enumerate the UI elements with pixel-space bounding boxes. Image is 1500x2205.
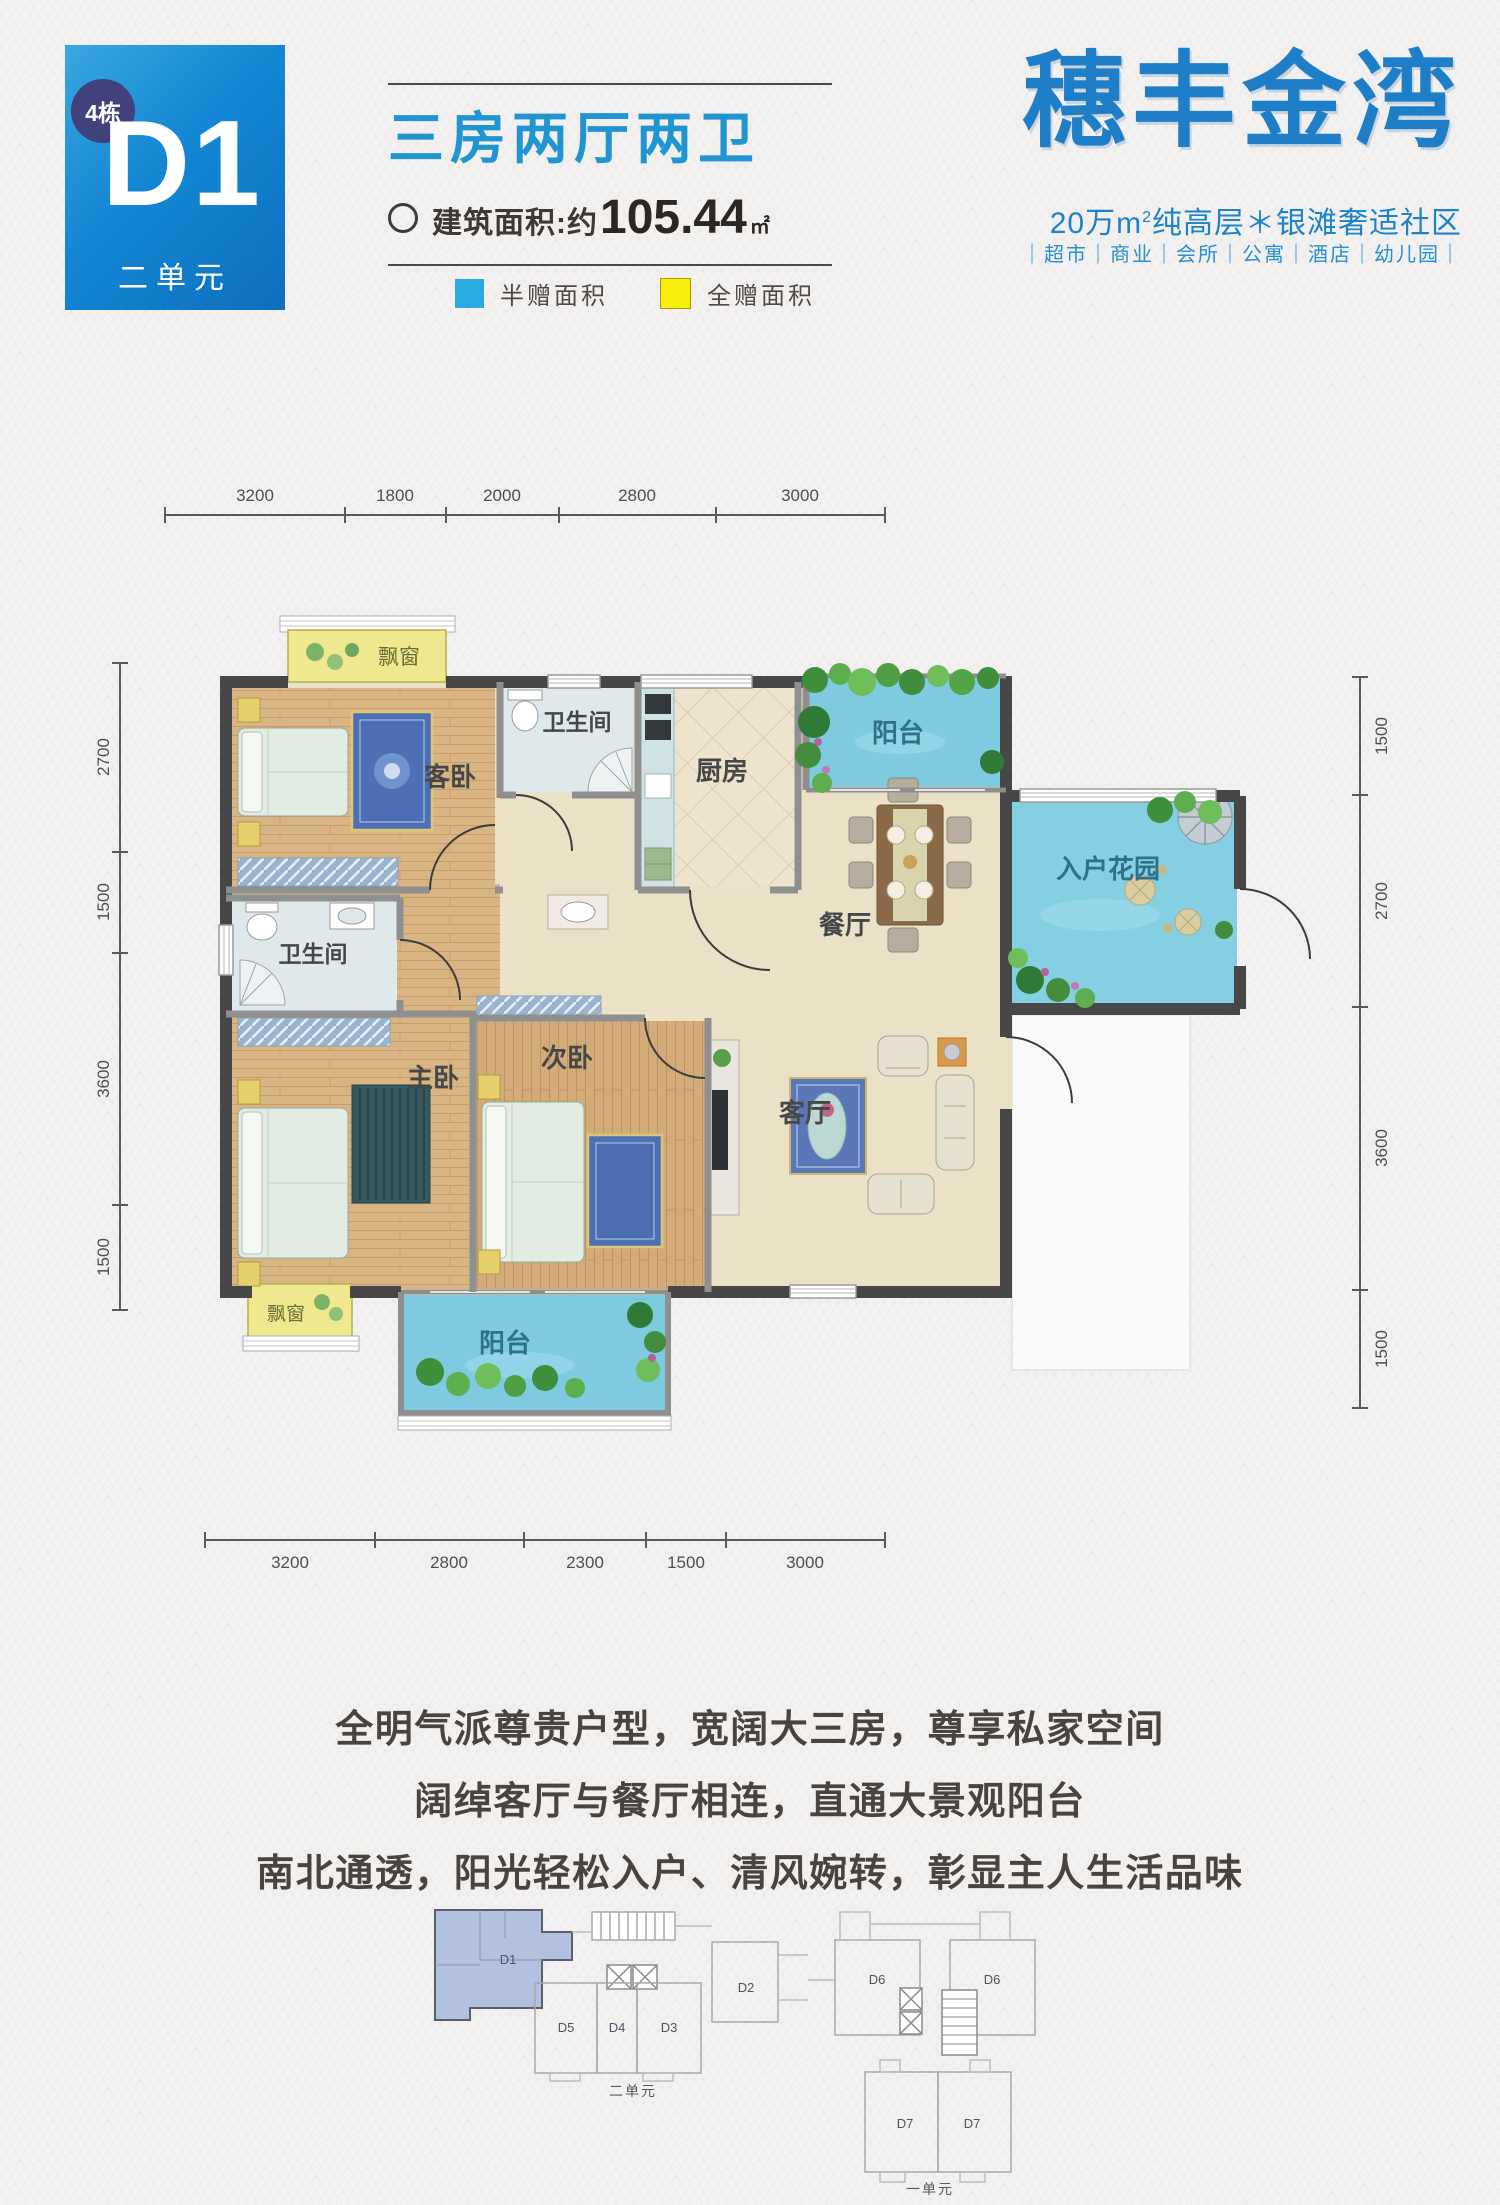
label-kitchen: 厨房	[696, 756, 748, 786]
half-gift-area-swatch	[455, 279, 484, 308]
dim-top-2: 1800	[376, 486, 414, 505]
label-bay-window-top: 飘窗	[378, 646, 420, 669]
title-rule-bottom	[388, 264, 832, 266]
keyplan-labels: D1 D5 D4 D3 D2 D6 D6 D7 D7 二单元 一单元	[500, 1952, 1001, 2197]
label-bay-window-bottom: 飘窗	[267, 1303, 305, 1325]
keyplan-caption-right: 一单元	[906, 2181, 954, 2197]
tagline-sup: 2	[1142, 209, 1152, 226]
area-prefix: 建筑面积:约	[432, 198, 598, 242]
dim-top-1: 3200	[236, 486, 274, 505]
floor-plan: 3200 1800 2000 2800 3000 3200 2800 2300 …	[0, 330, 1500, 1630]
master-wardrobe	[238, 1018, 390, 1046]
keyplan-label-d6-left: D6	[869, 1972, 886, 1987]
unit-name: 二单元	[65, 253, 285, 297]
unit-code: D1	[65, 93, 285, 233]
dim-left-3: 3600	[94, 1060, 113, 1098]
dim-left-2: 1500	[94, 883, 113, 921]
key-plan: D1 D5 D4 D3 D2 D6 D6 D7 D7 二单元 一单元	[280, 1880, 1220, 2205]
area-value: 105.44	[600, 190, 747, 245]
poster-page: 4栋 D1 二单元 三房两厅两卫 建筑面积:约 105.44 ㎡ 半赠面积 全赠…	[0, 0, 1500, 2205]
second-rug	[588, 1135, 662, 1247]
keyplan-label-d2: D2	[738, 1980, 755, 1995]
page-title: 三房两厅两卫	[388, 94, 848, 175]
label-guest-bedroom: 客卧	[424, 762, 476, 792]
dim-right-2: 2700	[1372, 882, 1391, 920]
dim-top-5: 3000	[781, 486, 819, 505]
label-second-bedroom: 次卧	[541, 1043, 593, 1073]
label-master-bedroom: 主卧	[407, 1063, 459, 1093]
dim-top-3: 2000	[483, 486, 521, 505]
legend: 半赠面积 全赠面积	[455, 276, 867, 311]
area-row: 建筑面积:约 105.44 ㎡	[388, 190, 770, 245]
unit-code-box: 4栋 D1 二单元	[65, 45, 285, 310]
guest-rug	[352, 712, 432, 830]
dim-bottom-5: 3000	[786, 1553, 824, 1572]
brand-logo: 穗丰金湾	[890, 40, 1462, 165]
dim-left-4: 1500	[94, 1238, 113, 1276]
keyplan-label-d5: D5	[558, 2020, 575, 2035]
tagline-suffix: 纯高层＊银滩奢适社区	[1152, 207, 1462, 240]
dim-bottom-1: 3200	[271, 1553, 309, 1572]
keyplan-caption-left: 二单元	[609, 2083, 657, 2099]
master-bed	[238, 1080, 348, 1286]
dim-bottom-2: 2800	[430, 1553, 468, 1572]
marketing-line-1: 全明气派尊贵户型，宽阔大三房，尊享私家空间	[0, 1698, 1500, 1753]
dim-right-1: 1500	[1372, 717, 1391, 755]
master-rug	[352, 1085, 430, 1203]
brand-logo-text: 穗丰金湾	[890, 40, 1462, 165]
legend-label: 全赠面积	[707, 276, 815, 311]
legend-label: 半赠面积	[500, 276, 608, 311]
circle-bullet-icon	[388, 203, 418, 233]
area-unit: ㎡	[750, 210, 770, 239]
brand-tagline: 20万m2纯高层＊银滩奢适社区	[890, 198, 1462, 242]
tagline-prefix: 20万m	[1050, 207, 1142, 240]
label-entry-garden: 入户花园	[1056, 854, 1160, 884]
full-gift-area-swatch	[660, 278, 691, 309]
keyplan-label-d4: D4	[609, 2020, 626, 2035]
label-living-room: 客厅	[779, 1098, 831, 1128]
keyplan-label-d1: D1	[500, 1952, 517, 1967]
title-rule-top	[388, 83, 832, 85]
dim-right-3: 3600	[1372, 1129, 1391, 1167]
kitchen-counter	[641, 688, 674, 887]
label-bathroom-1: 卫生间	[543, 709, 612, 735]
marketing-line-2: 阔绰客厅与餐厅相连，直通大景观阳台	[0, 1770, 1500, 1825]
label-bathroom-2: 卫生间	[279, 941, 348, 967]
keyplan-label-d3: D3	[661, 2020, 678, 2035]
keyplan-label-d7-left: D7	[897, 2116, 914, 2131]
keyplan-left-outlines	[435, 1910, 808, 2081]
dim-bottom-3: 2300	[566, 1553, 604, 1572]
second-bed	[478, 1075, 584, 1274]
dim-top-4: 2800	[618, 486, 656, 505]
legend-item-half: 半赠面积	[455, 276, 608, 311]
keyplan-right-outlines	[808, 1912, 1035, 2182]
label-balcony-top: 阳台	[872, 718, 924, 748]
guest-closet	[238, 858, 398, 886]
public-corridor-area	[1012, 1015, 1190, 1370]
legend-item-full: 全赠面积	[660, 276, 815, 311]
label-balcony-bottom: 阳台	[479, 1328, 531, 1358]
dim-bottom-4: 1500	[667, 1553, 705, 1572]
dim-left-1: 2700	[94, 738, 113, 776]
dim-right-4: 1500	[1372, 1330, 1391, 1368]
keyplan-label-d6-right: D6	[984, 1972, 1001, 1987]
brand-services: ｜超市｜商业｜会所｜公寓｜酒店｜幼儿园｜	[890, 238, 1462, 267]
keyplan-label-d7-right: D7	[964, 2116, 981, 2131]
label-dining: 餐厅	[819, 910, 871, 940]
